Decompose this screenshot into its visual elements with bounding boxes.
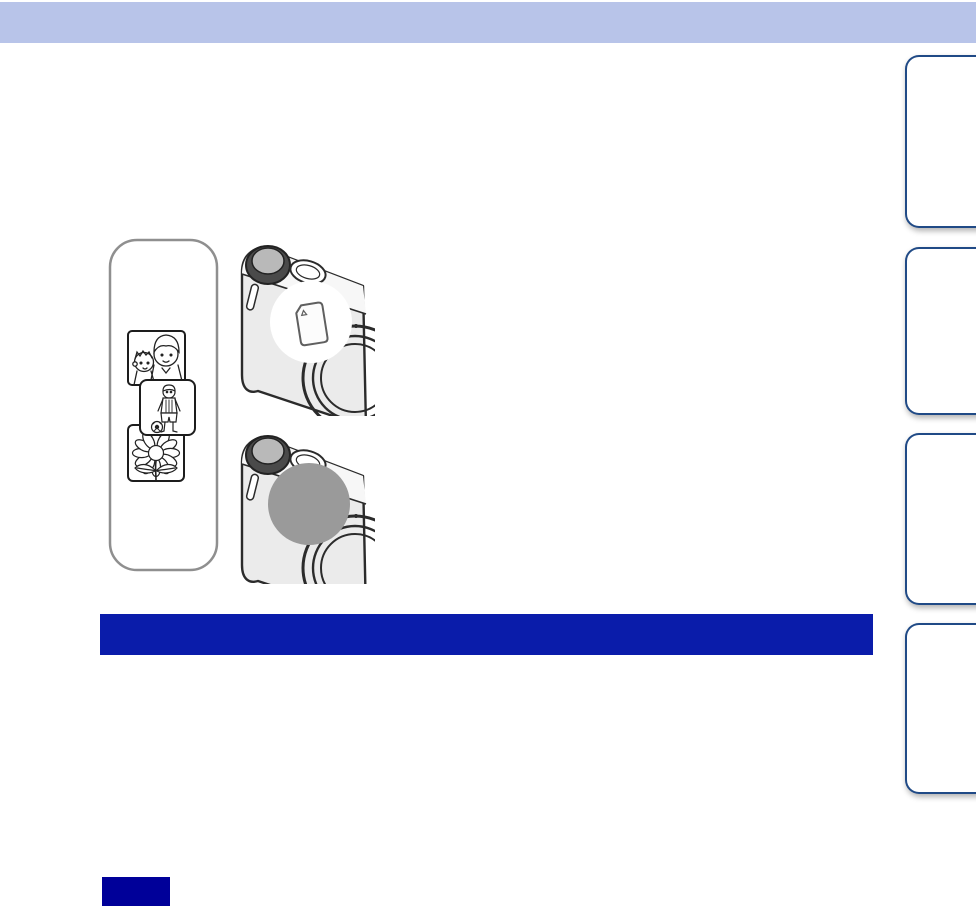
- nav-tab-4[interactable]: [905, 623, 976, 794]
- page-footer-chip: [102, 877, 170, 906]
- memory-recording-illustration: [100, 225, 380, 597]
- nav-tab-4-label: [907, 625, 976, 641]
- camera-internal-memory-illustration: [242, 436, 380, 597]
- nav-tab-3[interactable]: [905, 433, 976, 605]
- section-heading-bar: [100, 614, 873, 655]
- boy-with-ball-photo-icon: [140, 380, 195, 435]
- camera-memory-card-illustration: [242, 246, 380, 430]
- nav-tab-2[interactable]: [905, 247, 976, 415]
- nav-tab-3-label: [907, 435, 976, 451]
- manual-page: [0, 0, 976, 906]
- nav-tab-1[interactable]: [905, 55, 976, 228]
- kids-photo-icon: [128, 331, 185, 385]
- memory-card-icon: [295, 302, 328, 346]
- page-header-bar: [0, 2, 976, 43]
- nav-tab-2-label: [907, 249, 976, 265]
- nav-tab-1-label: [907, 57, 976, 73]
- internal-memory-circle-icon: [268, 463, 350, 545]
